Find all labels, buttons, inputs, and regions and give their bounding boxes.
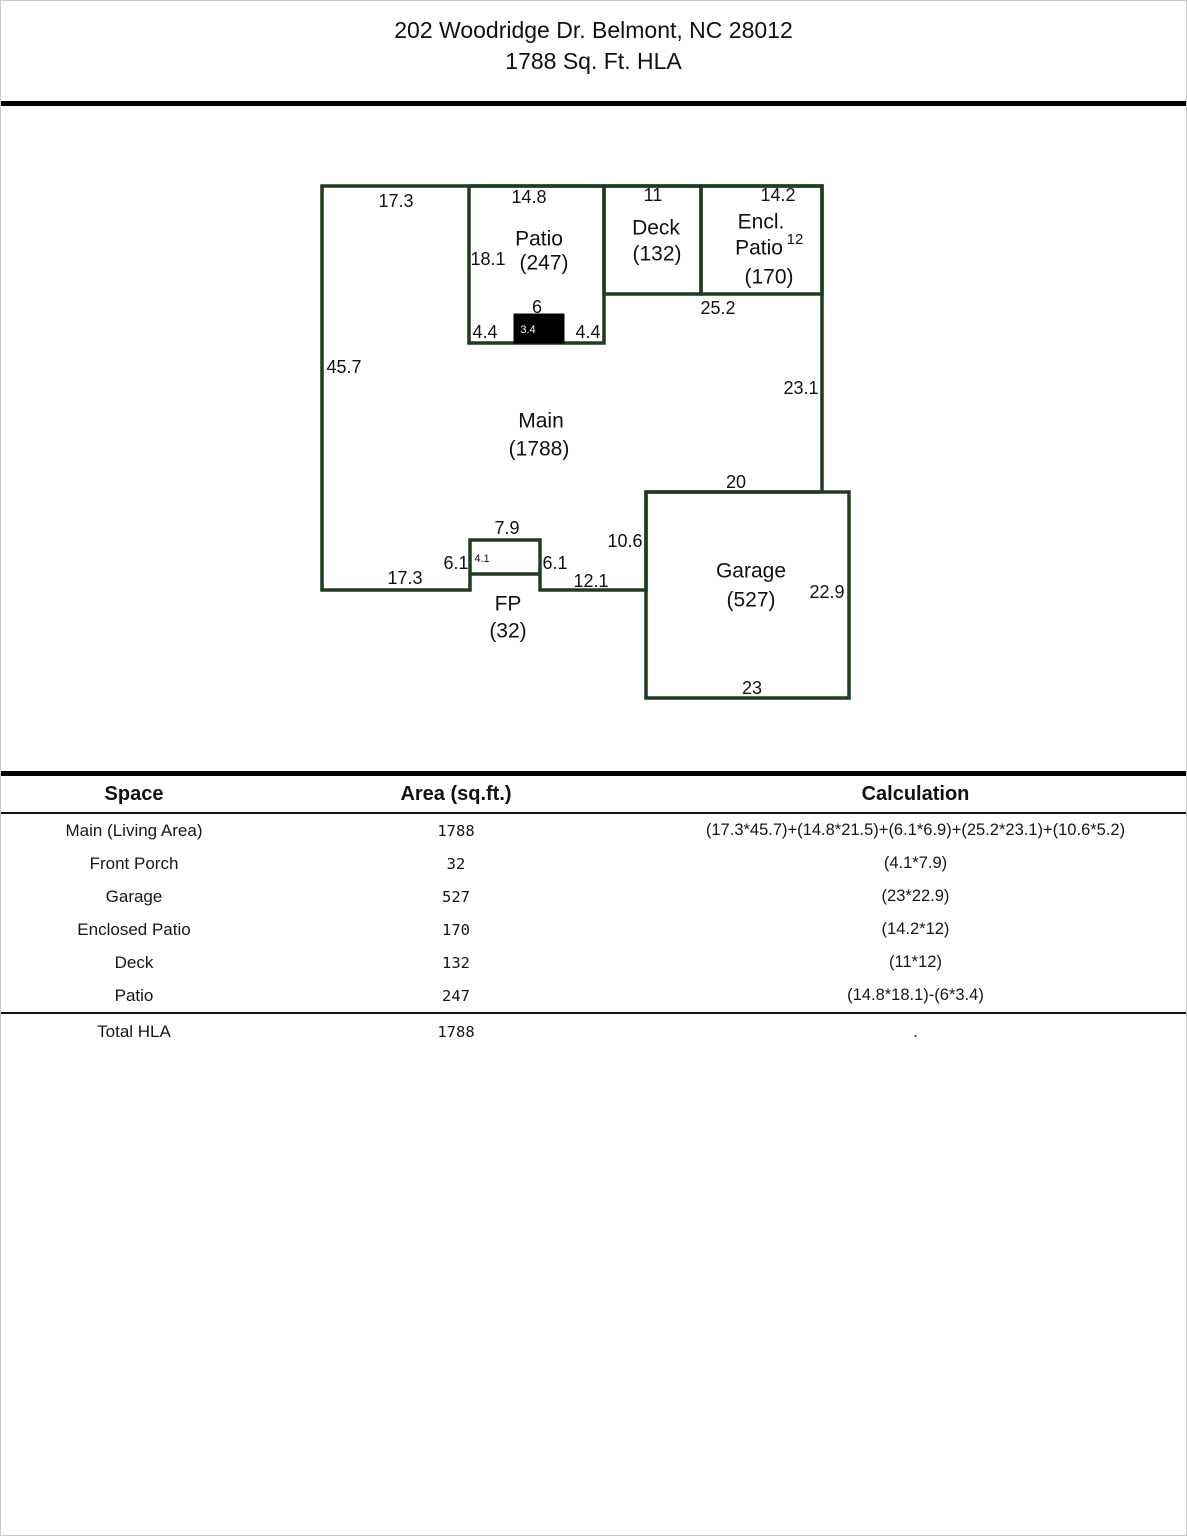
dim-garage-right-height: 22.9 [809,582,844,602]
dim-right-height: 23.1 [783,378,818,398]
space-cell: Deck [1,946,267,979]
area-cell: 170 [267,913,645,946]
patio-area-label: (247) [519,252,568,275]
table-row: Main (Living Area) 1788 (17.3*45.7)+(14.… [1,813,1186,847]
dim-fp-width: 7.9 [494,518,519,538]
dim-fp-depth: 4.1 [474,553,489,565]
fireplace-area-label: (32) [489,620,526,643]
space-cell: Front Porch [1,847,267,880]
dim-encl-width: 14.2 [760,185,795,205]
garage-area-label: (527) [726,589,775,612]
area-cell: 527 [267,880,645,913]
fireplace-label: FP [495,593,522,616]
calc-cell: (11*12) [645,946,1186,979]
dim-deck-width: 11 [644,185,663,205]
dim-chimney-depth: 3.4 [520,324,535,336]
deck-area-label: (132) [632,243,681,266]
dim-garage-left-height: 10.6 [607,531,642,551]
table-row: Garage 527 (23*22.9) [1,880,1186,913]
area-cell: 32 [267,847,645,880]
area-table-section: Space Area (sq.ft.) Calculation Main (Li… [1,771,1186,1050]
table-header-row: Space Area (sq.ft.) Calculation [1,774,1186,814]
total-calc-cell: . [645,1013,1186,1050]
calc-cell: (4.1*7.9) [645,847,1186,880]
table-row: Front Porch 32 (4.1*7.9) [1,847,1186,880]
table-row: Enclosed Patio 170 (14.2*12) [1,913,1186,946]
dim-encl-depth: 12 [787,231,804,248]
space-cell: Enclosed Patio [1,913,267,946]
dim-chimney-width: 6 [532,297,542,317]
col-header-calculation: Calculation [645,774,1186,814]
total-area-cell: 1788 [267,1013,645,1050]
area-table: Space Area (sq.ft.) Calculation Main (Li… [1,771,1186,1050]
dim-patio-depth: 18.1 [470,249,505,269]
space-cell: Main (Living Area) [1,813,267,847]
dim-top-left-width: 17.3 [378,191,413,211]
dim-bottom-mid-width: 12.1 [573,571,608,591]
area-cell: 1788 [267,813,645,847]
area-cell: 132 [267,946,645,979]
table-total-row: Total HLA 1788 . [1,1013,1186,1050]
col-header-area: Area (sq.ft.) [267,774,645,814]
dim-bottom-left-width: 17.3 [387,568,422,588]
col-header-space: Space [1,774,267,814]
dim-patio-width: 14.8 [511,187,546,207]
floorplan-sketch: 17.3 14.8 11 14.2 12 18.1 6 3.4 4.4 4.4 … [1,1,1187,761]
calc-cell: (14.8*18.1)-(6*3.4) [645,979,1186,1013]
enclosed-patio-label-line1: Encl. [738,211,785,234]
dim-left-height: 45.7 [326,357,361,377]
patio-label: Patio [515,228,563,251]
deck-label: Deck [632,217,680,240]
total-space-cell: Total HLA [1,1013,267,1050]
main-area-label: (1788) [509,438,570,461]
garage-label: Garage [716,560,786,583]
calc-cell: (17.3*45.7)+(14.8*21.5)+(6.1*6.9)+(25.2*… [645,813,1186,847]
enclosed-patio-area-label: (170) [744,266,793,289]
main-label: Main [518,410,564,433]
dim-garage-bottom-width: 23 [742,678,762,698]
space-cell: Patio [1,979,267,1013]
sketch-page: 202 Woodridge Dr. Belmont, NC 28012 1788… [0,0,1187,1536]
table-row: Patio 247 (14.8*18.1)-(6*3.4) [1,979,1186,1013]
dim-patio-bottom-left: 4.4 [472,322,497,342]
dim-fp-left-height: 6.1 [443,553,468,573]
calc-cell: (23*22.9) [645,880,1186,913]
space-cell: Garage [1,880,267,913]
dim-garage-top-width: 20 [726,472,746,492]
dim-patio-bottom-right: 4.4 [575,322,600,342]
table-row: Deck 132 (11*12) [1,946,1186,979]
enclosed-patio-label-line2: Patio [735,237,783,260]
area-cell: 247 [267,979,645,1013]
dim-below-deck-width: 25.2 [700,298,735,318]
dim-fp-right-height: 6.1 [542,553,567,573]
calc-cell: (14.2*12) [645,913,1186,946]
